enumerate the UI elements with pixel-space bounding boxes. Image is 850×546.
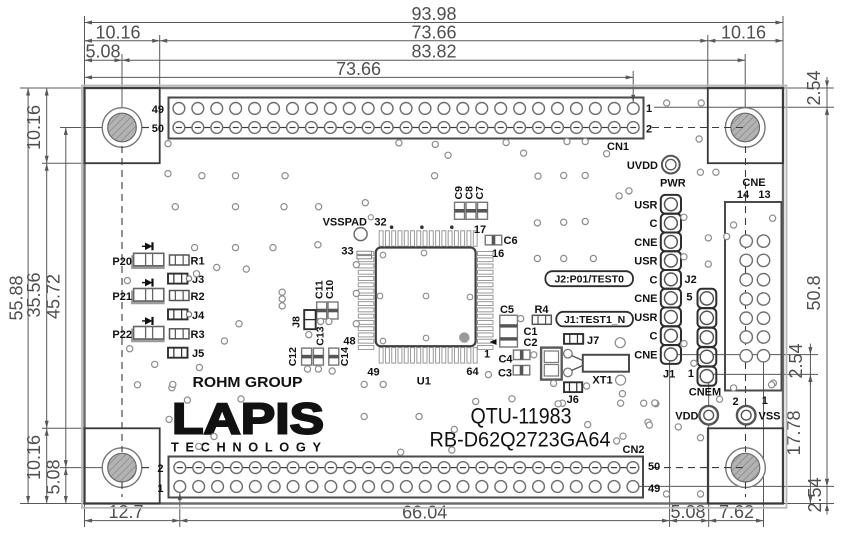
svg-text:2: 2	[732, 396, 738, 408]
svg-text:J1: J1	[663, 369, 675, 381]
svg-text:ROHM GROUP: ROHM GROUP	[193, 375, 303, 391]
svg-text:2.54: 2.54	[804, 70, 824, 105]
svg-text:50: 50	[648, 461, 660, 473]
svg-text:R2: R2	[191, 291, 205, 303]
svg-text:2: 2	[646, 124, 652, 136]
svg-text:32: 32	[374, 217, 386, 229]
svg-text:1: 1	[646, 103, 652, 115]
svg-text:10.16: 10.16	[24, 435, 44, 480]
svg-text:49: 49	[648, 483, 660, 495]
svg-text:VSSPAD: VSSPAD	[323, 217, 367, 229]
svg-text:QTU-11983: QTU-11983	[471, 404, 572, 429]
svg-text:C7: C7	[474, 186, 486, 200]
svg-text:J1:TEST1_N: J1:TEST1_N	[564, 314, 625, 326]
svg-text:83.82: 83.82	[411, 42, 456, 62]
svg-text:73.66: 73.66	[411, 22, 456, 42]
svg-text:U1: U1	[417, 376, 431, 388]
svg-text:C14: C14	[339, 347, 351, 366]
svg-text:C3: C3	[498, 368, 512, 380]
svg-text:CNE: CNE	[742, 177, 765, 189]
svg-text:J2: J2	[685, 274, 697, 286]
svg-text:1: 1	[688, 368, 694, 380]
svg-text:C12: C12	[287, 347, 299, 366]
svg-text:CN1: CN1	[607, 141, 629, 153]
svg-text:C: C	[650, 274, 658, 286]
svg-text:VSS: VSS	[759, 411, 781, 423]
svg-text:PWR: PWR	[660, 178, 686, 190]
svg-text:50.8: 50.8	[804, 275, 824, 310]
svg-text:5.08: 5.08	[670, 502, 705, 522]
svg-text:5: 5	[686, 292, 692, 304]
svg-text:J4: J4	[192, 310, 205, 322]
svg-text:CNE: CNE	[634, 237, 657, 249]
svg-text:P22: P22	[112, 329, 132, 341]
svg-text:R1: R1	[191, 256, 205, 268]
svg-text:USR: USR	[634, 199, 657, 211]
svg-text:C10: C10	[324, 280, 336, 299]
svg-text:13: 13	[758, 189, 770, 201]
svg-text:R3: R3	[191, 329, 205, 341]
svg-text:UVDD: UVDD	[627, 160, 658, 172]
svg-text:2.54: 2.54	[805, 477, 825, 512]
svg-text:48: 48	[343, 336, 355, 348]
svg-text:5.08: 5.08	[44, 459, 64, 494]
svg-text:16: 16	[492, 248, 504, 260]
svg-text:7.62: 7.62	[719, 502, 754, 522]
svg-text:1: 1	[762, 395, 768, 407]
svg-text:10.16: 10.16	[24, 105, 44, 150]
svg-text:C: C	[650, 331, 658, 343]
svg-text:R4: R4	[534, 304, 549, 316]
svg-text:CNE: CNE	[634, 349, 657, 361]
svg-text:5.08: 5.08	[85, 42, 120, 62]
svg-text:49: 49	[367, 367, 379, 379]
svg-text:XT1: XT1	[592, 375, 612, 387]
svg-text:12.7: 12.7	[108, 502, 143, 522]
svg-text:J7: J7	[587, 335, 599, 347]
svg-text:50: 50	[152, 123, 164, 135]
svg-text:14: 14	[737, 189, 750, 201]
svg-text:66.04: 66.04	[402, 502, 447, 522]
svg-text:C13: C13	[315, 326, 327, 345]
svg-text:45.72: 45.72	[44, 274, 64, 319]
svg-text:LAPIS: LAPIS	[172, 395, 324, 444]
svg-text:P20: P20	[112, 256, 132, 268]
svg-text:C: C	[650, 218, 658, 230]
svg-text:J2:P01/TEST0: J2:P01/TEST0	[554, 274, 624, 286]
svg-text:USR: USR	[634, 312, 657, 324]
svg-text:C5: C5	[500, 304, 514, 316]
svg-text:35.56: 35.56	[24, 272, 44, 317]
svg-text:93.98: 93.98	[411, 4, 456, 24]
svg-text:17: 17	[474, 224, 486, 236]
svg-text:49: 49	[152, 104, 164, 116]
svg-text:C6: C6	[504, 235, 518, 247]
svg-text:J5: J5	[192, 348, 204, 360]
svg-text:P21: P21	[112, 291, 132, 303]
svg-text:C2: C2	[523, 337, 537, 349]
svg-text:VDD: VDD	[675, 411, 698, 423]
svg-text:USR: USR	[634, 256, 657, 268]
svg-text:2.54: 2.54	[786, 343, 806, 378]
svg-text:1: 1	[484, 349, 490, 361]
svg-text:10.16: 10.16	[95, 22, 140, 42]
svg-text:2: 2	[157, 463, 163, 475]
svg-text:J8: J8	[291, 316, 303, 328]
svg-text:CNE: CNE	[634, 293, 657, 305]
svg-text:1: 1	[157, 483, 163, 495]
svg-text:C4: C4	[498, 354, 513, 366]
svg-text:10.16: 10.16	[721, 22, 766, 42]
svg-text:CNEM: CNEM	[689, 387, 721, 399]
svg-text:64: 64	[466, 366, 479, 378]
svg-text:73.66: 73.66	[336, 59, 381, 79]
svg-text:CN2: CN2	[623, 444, 645, 456]
svg-text:33: 33	[341, 246, 353, 258]
